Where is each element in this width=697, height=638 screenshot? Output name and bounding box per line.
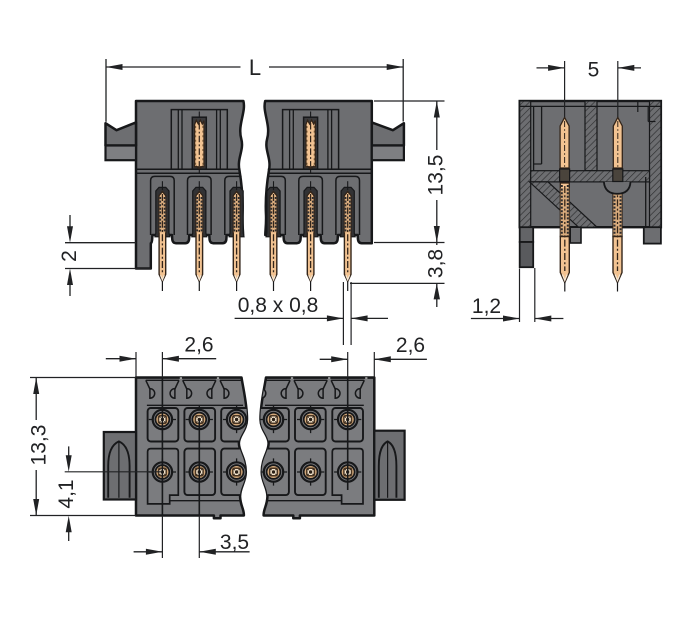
svg-text:L: L [249,55,261,80]
svg-text:13,3: 13,3 [28,425,51,466]
svg-text:13,5: 13,5 [425,155,448,196]
svg-text:2,6: 2,6 [184,334,213,357]
svg-text:2,6: 2,6 [396,334,425,357]
svg-text:2: 2 [58,250,81,262]
svg-text:3,8: 3,8 [425,249,448,278]
svg-text:5: 5 [588,59,600,82]
svg-text:1,2: 1,2 [472,295,501,318]
svg-text:0,8 x 0,8: 0,8 x 0,8 [238,294,319,317]
svg-text:4,1: 4,1 [55,479,78,508]
svg-text:3,5: 3,5 [220,531,249,554]
